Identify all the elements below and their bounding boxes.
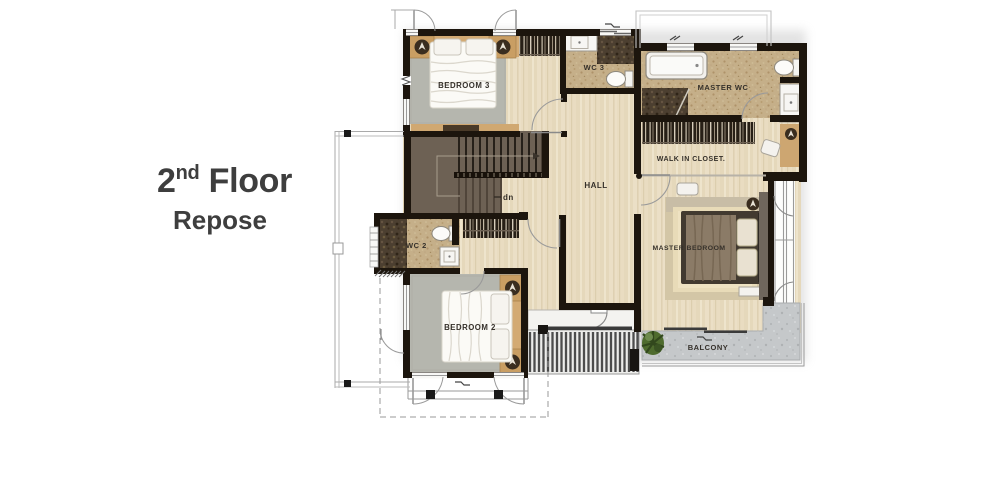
svg-text:dn: dn [503,193,514,202]
svg-text:MASTER BEDROOM: MASTER BEDROOM [652,245,725,252]
svg-text:HALL: HALL [584,181,607,190]
svg-text:BEDROOM 2: BEDROOM 2 [444,323,496,332]
svg-text:Repose: Repose [173,205,267,235]
svg-text:MASTER WC: MASTER WC [698,83,749,92]
svg-text:WC 3: WC 3 [584,63,605,72]
svg-text:BALCONY: BALCONY [688,343,729,352]
svg-text:WALK IN CLOSET.: WALK IN CLOSET. [657,156,726,163]
svg-text:BEDROOM 3: BEDROOM 3 [438,81,490,90]
svg-text:WC 2: WC 2 [406,241,427,250]
